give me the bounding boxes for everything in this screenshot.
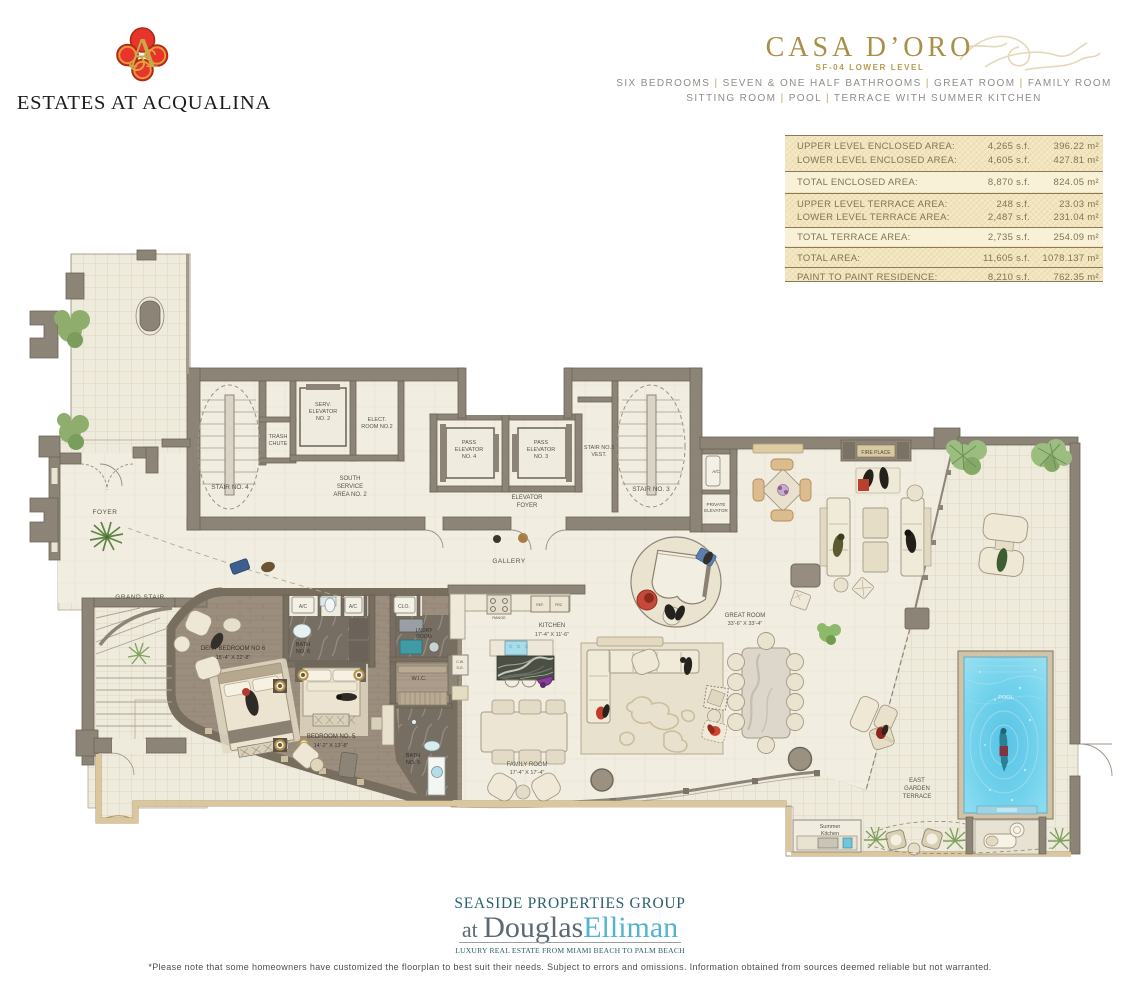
svg-text:ELEVATOR: ELEVATOR xyxy=(527,447,555,453)
svg-text:NO. 5: NO. 5 xyxy=(406,760,420,766)
svg-text:DEN / BEDROOM NO 6: DEN / BEDROOM NO 6 xyxy=(201,646,266,652)
svg-text:STAIR NO.3: STAIR NO.3 xyxy=(584,445,614,451)
svg-text:ELEVATOR: ELEVATOR xyxy=(511,495,543,501)
svg-text:ELEVATOR: ELEVATOR xyxy=(704,508,728,513)
svg-text:PASS: PASS xyxy=(462,440,477,446)
svg-text:TERRACE: TERRACE xyxy=(903,794,932,800)
svg-text:17'-4" X 11'-6": 17'-4" X 11'-6" xyxy=(535,632,569,638)
svg-text:SERV.: SERV. xyxy=(315,402,331,408)
svg-text:POOL: POOL xyxy=(998,695,1013,701)
svg-text:C.W.: C.W. xyxy=(456,660,464,664)
svg-text:ROOM: ROOM xyxy=(416,634,432,640)
svg-text:FRZ.: FRZ. xyxy=(555,603,563,607)
svg-text:A/C: A/C xyxy=(349,604,358,610)
svg-text:FOYER: FOYER xyxy=(517,503,538,509)
svg-text:A/C: A/C xyxy=(712,469,720,474)
svg-text:14'-2" X 13'-8": 14'-2" X 13'-8" xyxy=(314,743,349,749)
svg-text:GREAT ROOM: GREAT ROOM xyxy=(725,613,765,619)
svg-text:STAIR NO. 4: STAIR NO. 4 xyxy=(211,484,249,491)
svg-text:VEST.: VEST. xyxy=(591,452,607,458)
svg-text:S.O.: S.O. xyxy=(456,666,463,670)
svg-text:15'-4" X 22'-8": 15'-4" X 22'-8" xyxy=(216,655,251,661)
svg-text:33'-6" X 33'-4": 33'-6" X 33'-4" xyxy=(728,621,763,627)
svg-text:FOYER: FOYER xyxy=(93,509,118,516)
svg-text:GALLERY: GALLERY xyxy=(492,558,526,565)
svg-text:CHUTE: CHUTE xyxy=(269,441,288,447)
svg-text:PASS: PASS xyxy=(534,440,549,446)
svg-text:ROOM NO.2: ROOM NO.2 xyxy=(361,424,392,430)
svg-text:BATH: BATH xyxy=(406,753,420,759)
svg-text:AREA NO. 2: AREA NO. 2 xyxy=(333,492,367,498)
svg-text:TRASH: TRASH xyxy=(269,434,288,440)
svg-text:SOUTH: SOUTH xyxy=(340,476,361,482)
svg-text:BEDROOM NO. 5: BEDROOM NO. 5 xyxy=(307,734,356,740)
svg-text:PRIVATE: PRIVATE xyxy=(707,502,726,507)
svg-text:ELEVATOR: ELEVATOR xyxy=(455,447,483,453)
svg-text:17'-4" X 17'-4": 17'-4" X 17'-4" xyxy=(510,770,545,776)
svg-text:NO. 3: NO. 3 xyxy=(534,454,548,460)
svg-text:CLO.: CLO. xyxy=(398,604,410,610)
svg-text:KITCHEN: KITCHEN xyxy=(539,623,565,629)
svg-text:Summer: Summer xyxy=(820,824,841,830)
svg-text:SERVICE: SERVICE xyxy=(337,484,363,490)
svg-text:RANGE: RANGE xyxy=(492,616,506,620)
svg-text:GARDEN: GARDEN xyxy=(904,786,930,792)
svg-text:Kitchen: Kitchen xyxy=(821,831,839,837)
svg-text:FAMILY ROOM: FAMILY ROOM xyxy=(506,762,547,768)
svg-text:EAST: EAST xyxy=(909,778,925,784)
svg-text:A/C: A/C xyxy=(299,604,308,610)
svg-text:NO. 6: NO. 6 xyxy=(296,649,310,655)
svg-text:STAIR NO. 3: STAIR NO. 3 xyxy=(632,486,670,493)
svg-text:BATH: BATH xyxy=(296,642,310,648)
svg-text:GRAND STAIR: GRAND STAIR xyxy=(115,594,164,601)
svg-text:NO. 2: NO. 2 xyxy=(316,416,330,422)
svg-text:W.I.C.: W.I.C. xyxy=(412,676,427,682)
svg-text:ELEVATOR: ELEVATOR xyxy=(309,409,337,415)
svg-text:FIRE PLACE: FIRE PLACE xyxy=(861,450,891,456)
svg-text:NO. 4: NO. 4 xyxy=(462,454,476,460)
svg-text:ELECT.: ELECT. xyxy=(368,417,387,423)
svg-text:REF.: REF. xyxy=(536,603,544,607)
